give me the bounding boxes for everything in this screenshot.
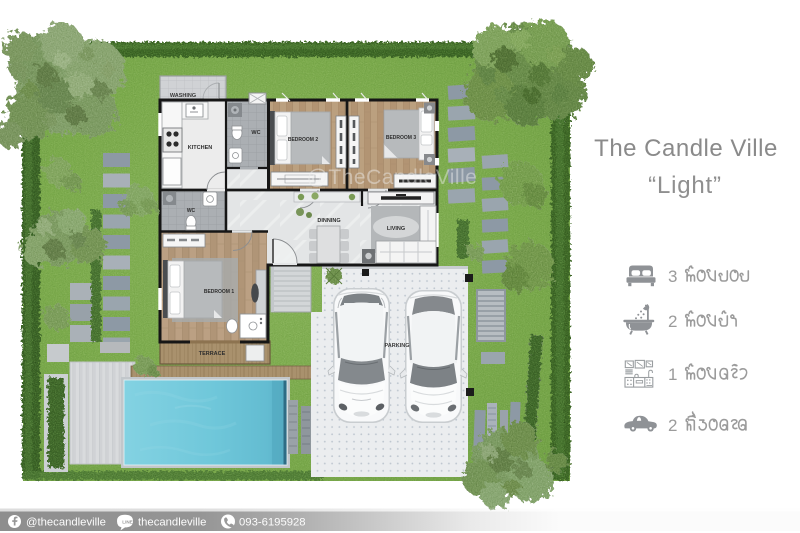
svg-text:DINNING: DINNING [317, 218, 340, 224]
svg-text:3: 3 [668, 267, 677, 286]
svg-text:The Candle Ville: The Candle Ville [594, 135, 778, 162]
svg-text:LIVING: LIVING [387, 226, 405, 232]
svg-text:TERRACE: TERRACE [199, 351, 226, 357]
svg-text:WC: WC [251, 130, 260, 136]
svg-text:@thecandleville: @thecandleville [26, 517, 106, 529]
svg-text:WC: WC [187, 208, 196, 214]
svg-text:093-6195928: 093-6195928 [239, 517, 306, 529]
svg-text:PARKING: PARKING [385, 343, 410, 349]
svg-text:BEDROOM 1: BEDROOM 1 [204, 289, 235, 295]
svg-text:2: 2 [668, 312, 677, 331]
svg-text:thecandleville: thecandleville [138, 517, 206, 529]
svg-text:BEDROOM 3: BEDROOM 3 [386, 135, 417, 141]
svg-text:KITCHEN: KITCHEN [188, 145, 212, 151]
svg-text:WASHING: WASHING [170, 93, 196, 99]
svg-text:1: 1 [668, 365, 677, 384]
svg-text:“Light”: “Light” [648, 172, 722, 199]
svg-text:LINE: LINE [122, 520, 132, 525]
svg-text:BEDROOM 2: BEDROOM 2 [288, 137, 319, 143]
svg-text:2: 2 [668, 416, 677, 435]
svg-text:@TheCandleVille: @TheCandleVille [307, 166, 478, 189]
